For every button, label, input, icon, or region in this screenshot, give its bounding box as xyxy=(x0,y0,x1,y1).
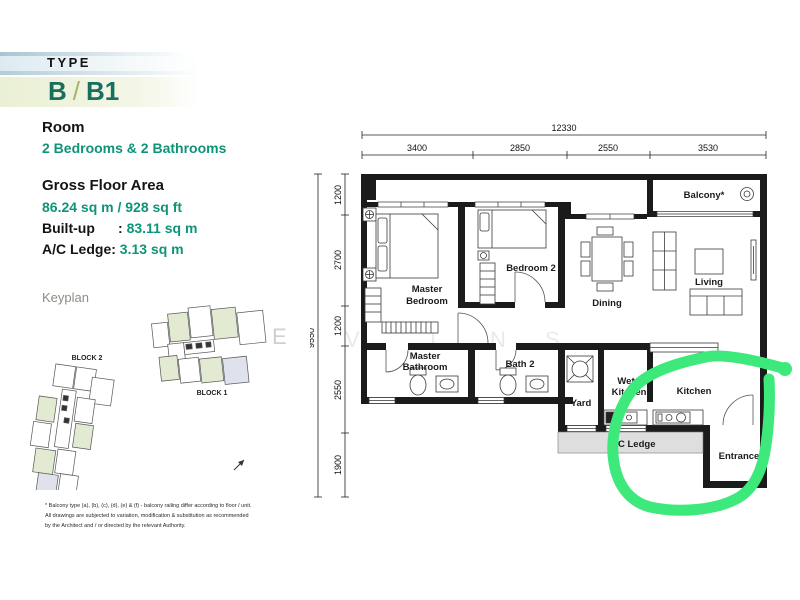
acledge-value: 3.13 sq m xyxy=(120,241,184,257)
keyplan-map: BLOCK 1 BLOCK 2 xyxy=(22,300,287,490)
builtup-value: 83.11 sq m xyxy=(127,220,198,236)
sofa-icon xyxy=(690,289,742,315)
label-kitchen: Kitchen xyxy=(677,386,712,397)
label-master-bedroom: Master xyxy=(412,284,443,295)
dim-total-width: 12330 xyxy=(551,123,576,133)
room-value: 2 Bedrooms & 2 Bathrooms xyxy=(42,140,226,156)
sink-icon xyxy=(436,376,548,392)
label-bedroom2: Bedroom 2 xyxy=(506,263,556,274)
header-gradient-strip-bottom xyxy=(0,71,200,75)
label-master-bathroom: Master xyxy=(410,351,441,362)
builtup-row: Built-up: 83.11 sq m xyxy=(42,220,197,236)
acledge-label: A/C Ledge: xyxy=(42,241,116,257)
master-bed-icon xyxy=(363,208,438,281)
keyplan-block1-label: BLOCK 1 xyxy=(197,390,228,397)
footnote-line: by the Architect and / or directed by th… xyxy=(45,521,305,531)
builtup-label: Built-up xyxy=(42,220,118,236)
label-master-bathroom: Bathroom xyxy=(403,362,448,373)
washing-machine-icon xyxy=(567,356,593,382)
window-bedroom2 xyxy=(475,202,545,207)
door-arc-hallway xyxy=(458,313,488,343)
bedroom2-bed-icon xyxy=(478,210,546,260)
unit-code-separator: / xyxy=(67,76,86,106)
label-master-bedroom: Bedroom xyxy=(406,296,448,307)
label-dining: Dining xyxy=(592,298,622,309)
label-wet-kitchen: Kitchen xyxy=(612,387,647,398)
builtup-colon: : xyxy=(118,220,123,236)
label-bath2: Bath 2 xyxy=(505,359,534,370)
dim-top-segment: 3400 xyxy=(407,143,427,153)
gfa-value: 86.24 sq m / 928 sq ft xyxy=(42,199,182,215)
unit-code: B/B1 xyxy=(48,76,119,107)
footnote: * Balcony type (a), (b), (c), (d), (e) &… xyxy=(45,501,305,532)
keyplan-block1 xyxy=(150,300,270,391)
gfa-label: Gross Floor Area xyxy=(42,177,164,194)
type-label: TYPE xyxy=(47,55,91,70)
type-band xyxy=(0,56,200,71)
window-master-bedroom xyxy=(378,202,448,207)
kitchen-cabinet-icon xyxy=(650,343,718,352)
dim-left-segment: 1200 xyxy=(333,316,343,336)
unit-code-right: B1 xyxy=(86,76,119,106)
floorplan-drawing: 12330 3400 2850 2550 3530 9550 1200 2700… xyxy=(310,110,800,550)
footnote-line: All drawings are subjected to variation,… xyxy=(45,511,305,521)
label-entrance: Entrance xyxy=(719,451,760,462)
room-labels: Master Bedroom Bedroom 2 Dining Living B… xyxy=(403,190,760,462)
dim-left-segment: 1900 xyxy=(333,455,343,475)
tv-icon xyxy=(751,240,756,280)
balcony-drain-icon xyxy=(741,188,754,201)
door-arc-bedroom2 xyxy=(515,272,545,302)
acledge-row: A/C Ledge: 3.13 sq m xyxy=(42,241,184,257)
coffee-table-icon xyxy=(695,249,723,274)
label-balcony: Balcony* xyxy=(684,190,725,201)
dining-table-icon xyxy=(581,227,633,291)
room-label: Room xyxy=(42,119,85,136)
label-wet-kitchen: Wet xyxy=(617,376,635,387)
dim-left-segment: 1200 xyxy=(333,185,343,205)
north-arrow-icon xyxy=(234,460,244,470)
door-arc-entrance xyxy=(723,395,753,425)
label-ac-ledge: A/C Ledge xyxy=(609,439,656,450)
footnote-line: * Balcony type (a), (b), (c), (d), (e) &… xyxy=(45,501,305,511)
shelf-icon xyxy=(653,232,676,290)
dim-top-segment: 2550 xyxy=(598,143,618,153)
keyplan-block2-label: BLOCK 2 xyxy=(72,355,103,362)
label-living: Living xyxy=(695,277,723,288)
dim-left-segment: 2550 xyxy=(333,380,343,400)
wet-kitchen-sink-icon xyxy=(604,410,647,425)
dim-top-segment: 3530 xyxy=(698,143,718,153)
dim-left-segment: 2700 xyxy=(333,250,343,270)
stove-icon xyxy=(653,410,703,425)
label-yard: Yard xyxy=(571,398,592,409)
unit-code-left: B xyxy=(48,76,67,106)
keyplan-block2 xyxy=(23,362,115,490)
dim-total-height: 9550 xyxy=(310,328,316,348)
dim-top-segment: 2850 xyxy=(510,143,530,153)
floorplan-brochure-page: TYPE B/B1 Room 2 Bedrooms & 2 Bathrooms … xyxy=(0,0,800,600)
